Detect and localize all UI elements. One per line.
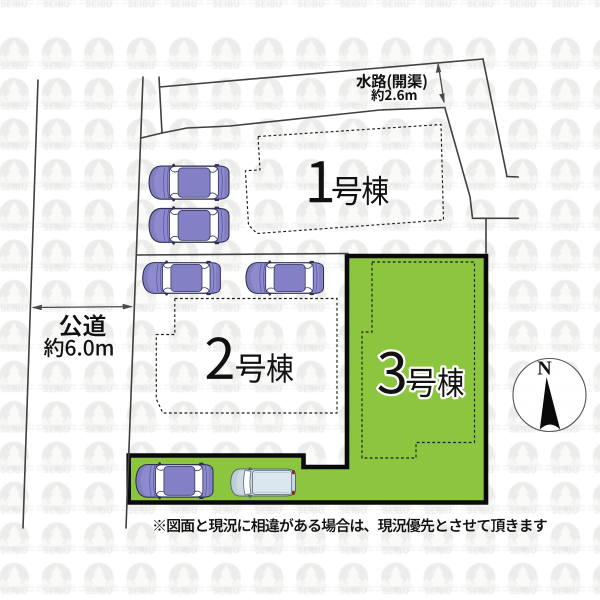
svg-text:N: N	[537, 358, 552, 380]
